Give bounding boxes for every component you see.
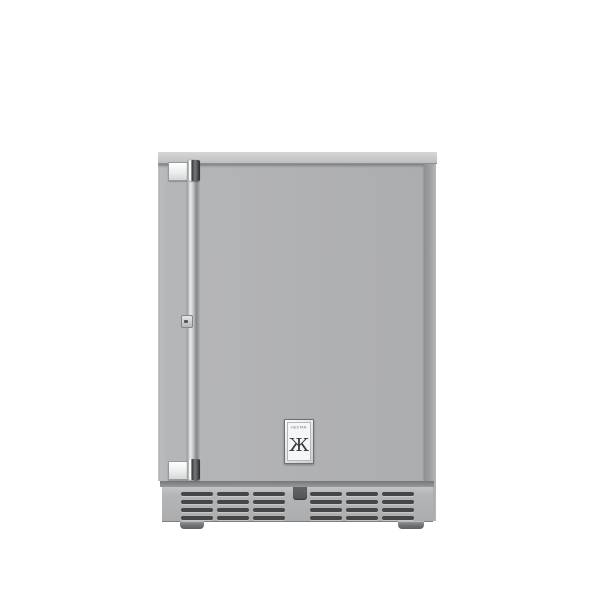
vent-slot	[181, 500, 213, 504]
vent-slot	[382, 500, 414, 504]
vent-slot	[181, 492, 213, 496]
vent-column	[217, 492, 249, 520]
vent-column	[382, 492, 414, 520]
vent-column	[346, 492, 378, 520]
brand-badge-face: HESTAN Ж	[287, 422, 311, 461]
right-foot	[398, 521, 424, 529]
vent-column	[253, 492, 285, 520]
handle-top-cap	[189, 160, 200, 181]
vent-slot	[217, 492, 249, 496]
vent-slot	[253, 508, 285, 512]
hestan-h-emblem-icon: Ж	[289, 435, 309, 457]
left-foot	[180, 521, 204, 529]
brand-badge: HESTAN Ж	[284, 419, 314, 464]
vent-slot	[217, 508, 249, 512]
vent-slot	[310, 516, 342, 520]
vent-slot	[346, 492, 378, 496]
kick-plate-latch	[293, 487, 307, 500]
brand-name: HESTAN	[291, 426, 307, 430]
vent-slot	[382, 508, 414, 512]
vent-column	[181, 492, 213, 520]
vent-slot	[253, 516, 285, 520]
vent-column	[310, 492, 342, 520]
product-photo: HESTAN Ж	[0, 0, 600, 600]
cabinet-side-panel	[424, 164, 436, 521]
vent-slot	[382, 492, 414, 496]
vent-slot	[217, 500, 249, 504]
vent-slot	[346, 516, 378, 520]
vent-slot	[346, 500, 378, 504]
vent-slot	[310, 500, 342, 504]
vent-slot	[346, 508, 378, 512]
lock-keyway	[184, 320, 188, 323]
vent-slot	[253, 500, 285, 504]
vent-slot	[181, 508, 213, 512]
vent-grille-right	[310, 492, 414, 520]
vent-slot	[310, 508, 342, 512]
vent-slot	[310, 492, 342, 496]
vent-slot	[217, 516, 249, 520]
vent-slot	[181, 516, 213, 520]
door-lock-icon	[181, 315, 193, 328]
vent-slot	[253, 492, 285, 496]
vent-slot	[382, 516, 414, 520]
handle-bottom-cap	[189, 459, 200, 480]
vent-grille-left	[181, 492, 285, 520]
